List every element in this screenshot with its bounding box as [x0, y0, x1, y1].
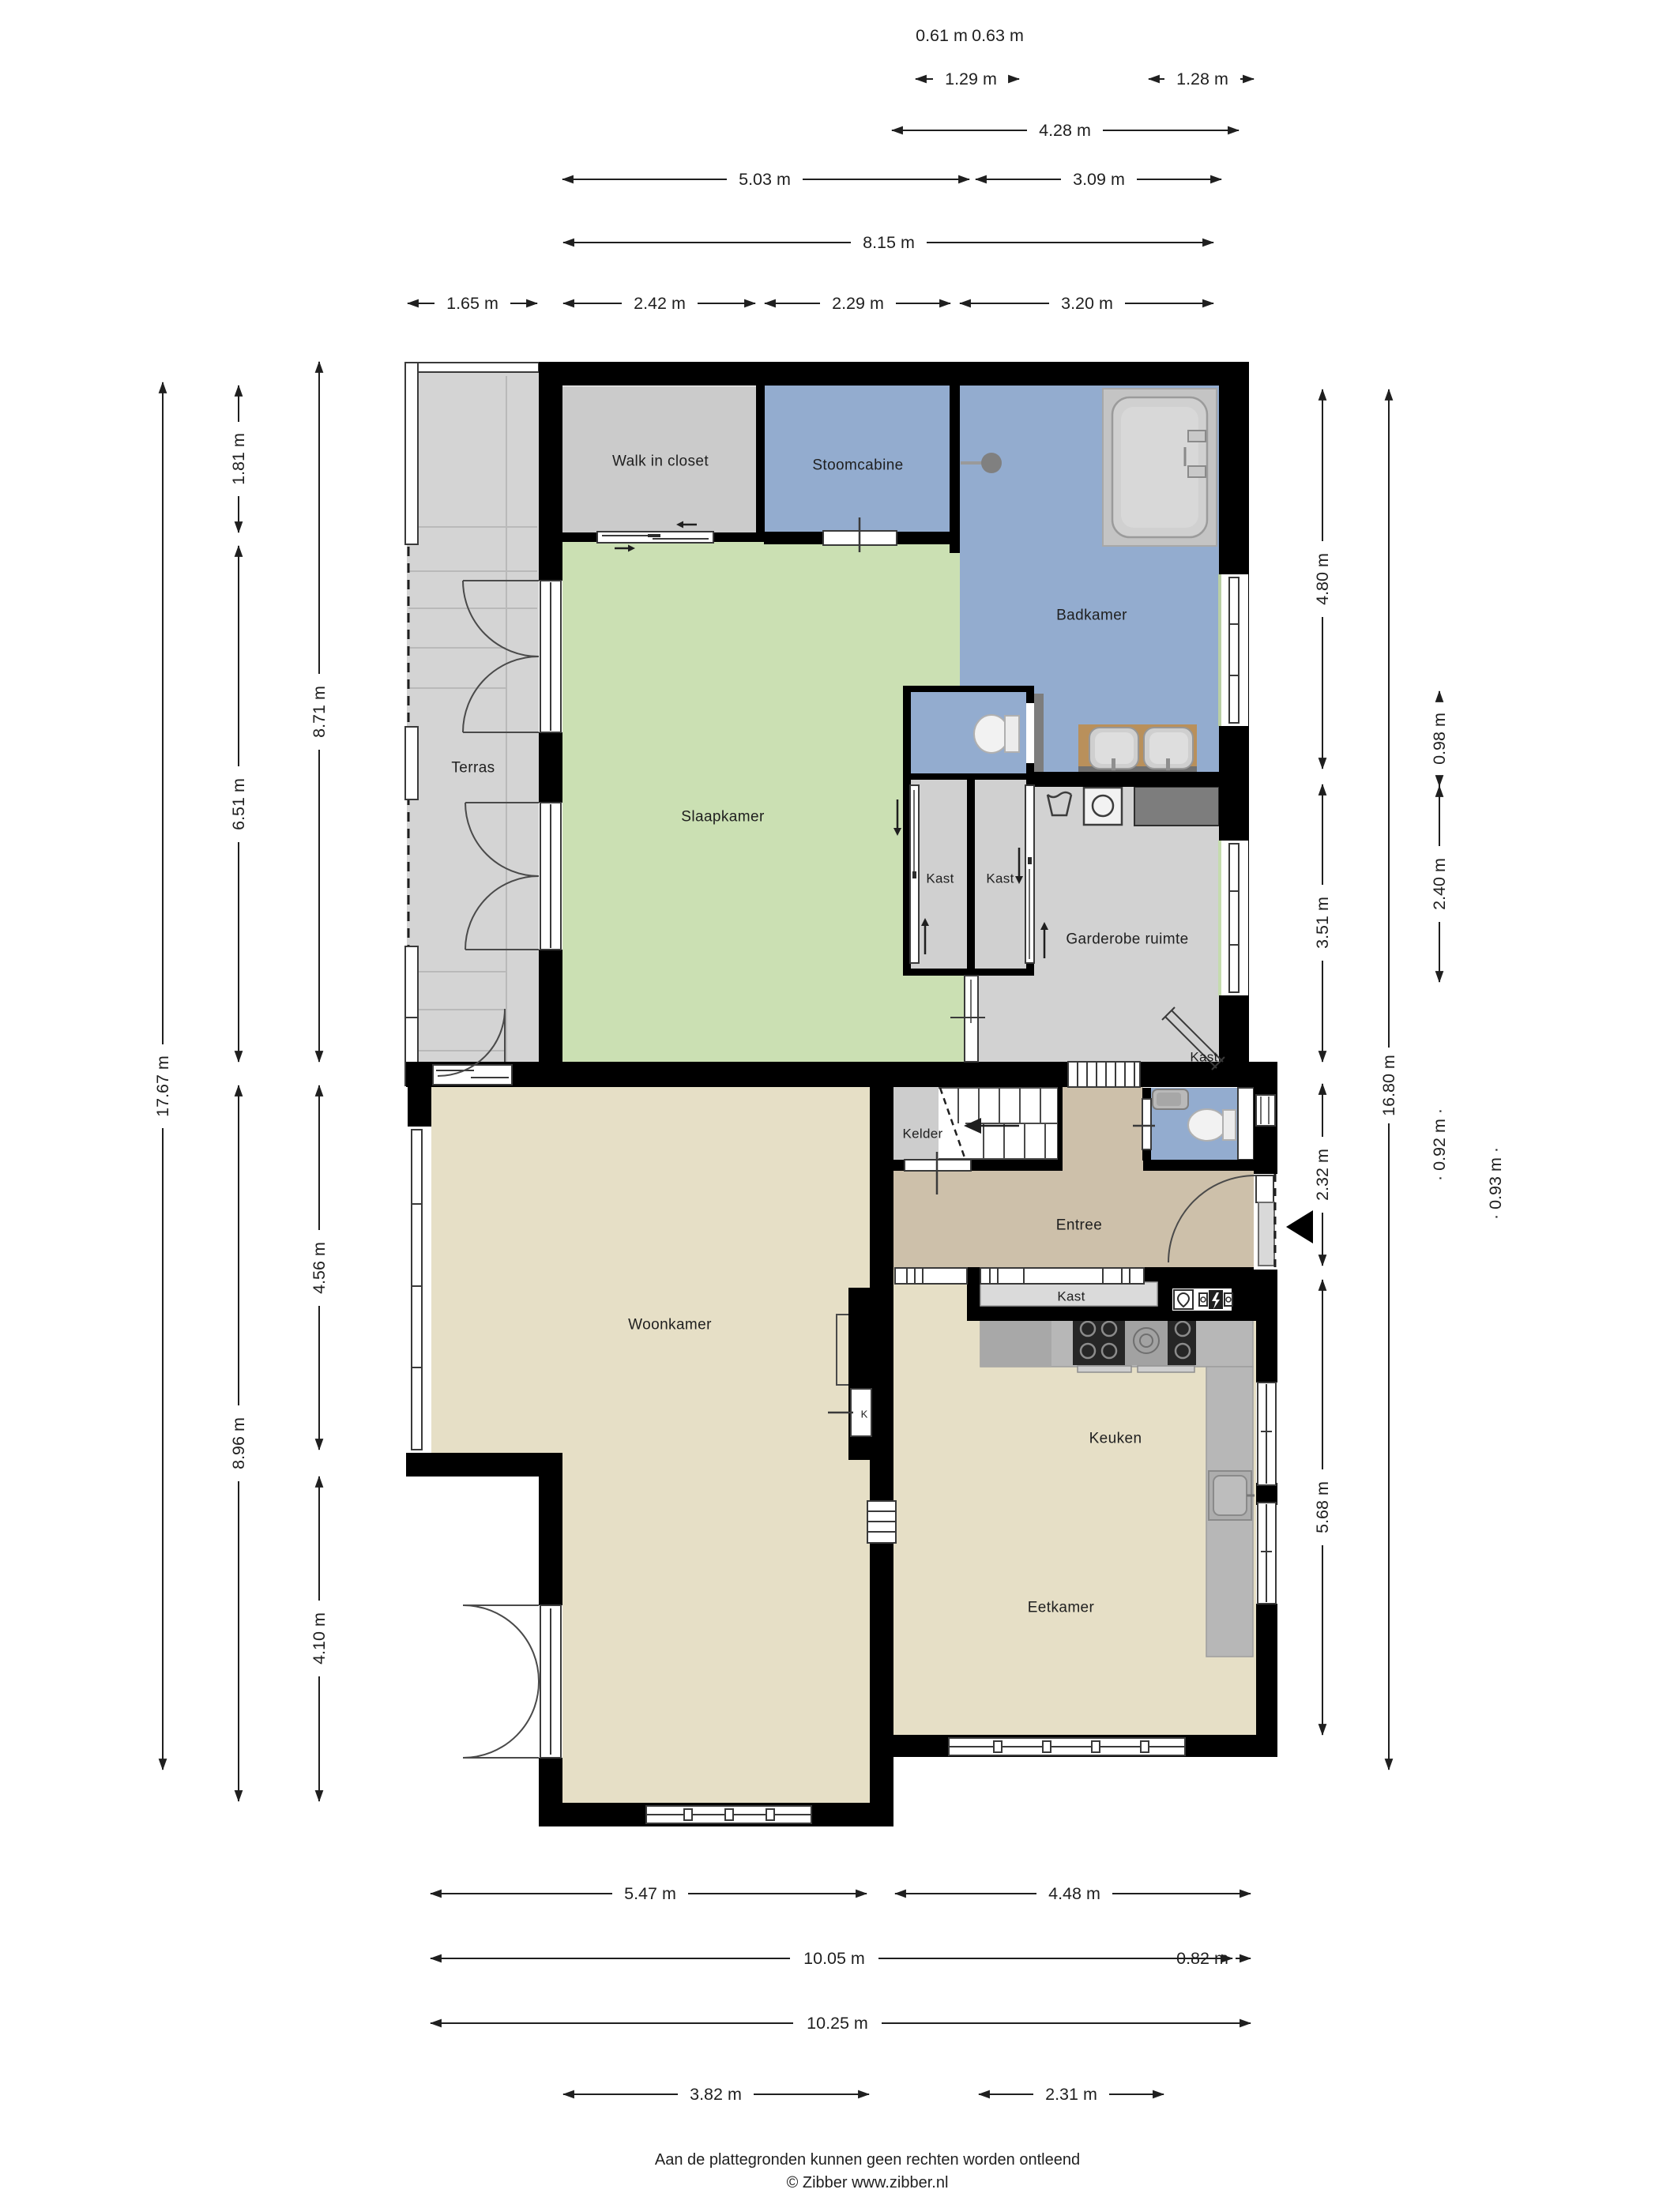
svg-text:Eetkamer: Eetkamer — [1028, 1600, 1095, 1616]
svg-text:4.56 m: 4.56 m — [310, 1242, 329, 1294]
svg-text:Kast: Kast — [926, 871, 954, 886]
svg-text:0.82 m: 0.82 m — [1176, 1949, 1228, 1968]
svg-text:2.42 m: 2.42 m — [634, 294, 686, 313]
svg-text:3.51 m: 3.51 m — [1313, 897, 1332, 949]
svg-text:4.28 m: 4.28 m — [1039, 121, 1091, 140]
svg-text:Keuken: Keuken — [1089, 1431, 1142, 1447]
svg-text:Stoomcabine: Stoomcabine — [812, 457, 903, 474]
svg-text:3.20 m: 3.20 m — [1061, 294, 1113, 313]
svg-text:16.80 m: 16.80 m — [1379, 1055, 1398, 1116]
svg-text:10.25 m: 10.25 m — [807, 2014, 868, 2033]
svg-text:Kelder: Kelder — [903, 1127, 943, 1142]
svg-text:Garderobe ruimte: Garderobe ruimte — [1066, 931, 1188, 948]
svg-text:2.32 m: 2.32 m — [1313, 1149, 1332, 1201]
svg-text:6.51 m: 6.51 m — [229, 778, 248, 830]
svg-text:1.28 m: 1.28 m — [1176, 70, 1228, 88]
svg-text:8.15 m: 8.15 m — [863, 233, 915, 252]
svg-text:Kast: Kast — [986, 871, 1014, 886]
svg-text:1.81 m: 1.81 m — [229, 433, 248, 485]
svg-text:5.03 m: 5.03 m — [739, 170, 791, 189]
svg-text:3.09 m: 3.09 m — [1073, 170, 1125, 189]
svg-text:Slaapkamer: Slaapkamer — [681, 809, 765, 826]
svg-text:Aan de plattegronden kunnen ge: Aan de plattegronden kunnen geen rechten… — [655, 2151, 1080, 2169]
svg-text:© Zibber www.zibber.nl: © Zibber www.zibber.nl — [787, 2174, 949, 2191]
svg-text:3.82 m: 3.82 m — [690, 2085, 742, 2104]
svg-text:Entree: Entree — [1056, 1217, 1102, 1234]
svg-text:Badkamer: Badkamer — [1056, 608, 1127, 624]
svg-text:Terras: Terras — [451, 760, 495, 777]
svg-text:2.29 m: 2.29 m — [832, 294, 884, 313]
svg-text:8.96 m: 8.96 m — [229, 1417, 248, 1469]
svg-text:4.10 m: 4.10 m — [310, 1612, 329, 1665]
svg-text:8.71 m: 8.71 m — [310, 686, 329, 738]
svg-text:· 0.92 m ·: · 0.92 m · — [1430, 1108, 1449, 1181]
svg-text:Walk in closet: Walk in closet — [612, 453, 709, 470]
svg-text:2.40 m: 2.40 m — [1430, 858, 1449, 910]
svg-text:0.98 m: 0.98 m — [1430, 713, 1449, 765]
svg-text:Kast: Kast — [1190, 1050, 1217, 1065]
svg-text:1.65 m: 1.65 m — [446, 294, 498, 313]
svg-text:1.29 m: 1.29 m — [945, 70, 997, 88]
svg-text:4.48 m: 4.48 m — [1048, 1884, 1100, 1903]
svg-text:Woonkamer: Woonkamer — [628, 1317, 712, 1334]
svg-text:17.67 m: 17.67 m — [153, 1055, 172, 1117]
svg-text:5.68 m: 5.68 m — [1313, 1481, 1332, 1533]
svg-text:K: K — [861, 1409, 868, 1420]
svg-text:· 0.93 m ·: · 0.93 m · — [1486, 1147, 1505, 1220]
svg-text:5.47 m: 5.47 m — [624, 1884, 676, 1903]
svg-text:10.05 m: 10.05 m — [803, 1949, 865, 1968]
svg-text:4.80 m: 4.80 m — [1313, 553, 1332, 605]
svg-text:2.31 m: 2.31 m — [1045, 2085, 1097, 2104]
svg-text:0.61 m: 0.61 m — [916, 26, 968, 45]
svg-text:0.63 m: 0.63 m — [972, 26, 1024, 45]
svg-text:Kast: Kast — [1057, 1289, 1085, 1304]
